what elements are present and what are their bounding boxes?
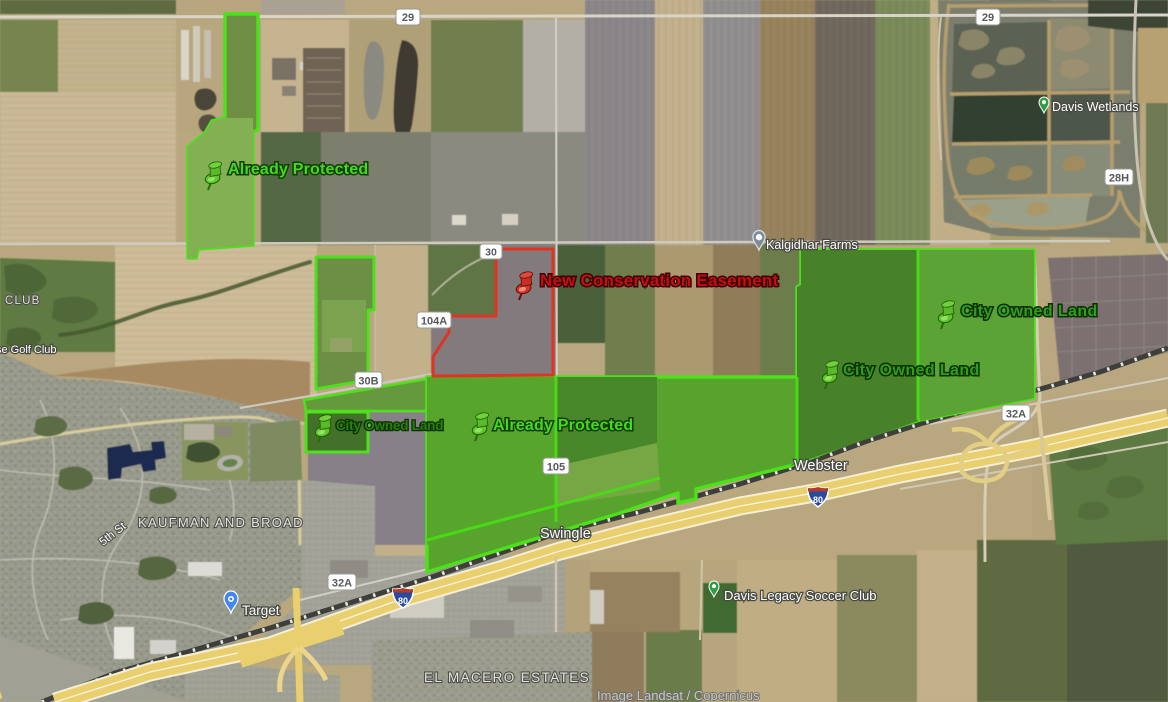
svg-text:City Owned Land: City Owned Land bbox=[843, 362, 980, 379]
svg-text:Swingle: Swingle bbox=[540, 526, 591, 542]
svg-text:City Owned Land: City Owned Land bbox=[961, 303, 1098, 320]
svg-text:105: 105 bbox=[547, 462, 565, 474]
svg-text:Webster: Webster bbox=[794, 458, 848, 474]
svg-text:Davis Wetlands: Davis Wetlands bbox=[1052, 100, 1139, 114]
svg-text:City Owned Land: City Owned Land bbox=[336, 418, 443, 433]
svg-text:28H: 28H bbox=[1109, 173, 1129, 185]
svg-text:104A: 104A bbox=[421, 316, 447, 328]
svg-text:29: 29 bbox=[402, 12, 414, 24]
svg-text:Kalgidhar Farms: Kalgidhar Farms bbox=[766, 238, 858, 252]
svg-text:30B: 30B bbox=[358, 376, 378, 388]
svg-text:32A: 32A bbox=[1006, 409, 1026, 421]
svg-text:30: 30 bbox=[485, 247, 497, 259]
svg-text:Already Protected: Already Protected bbox=[493, 417, 633, 434]
svg-text:Target: Target bbox=[242, 603, 280, 618]
svg-text:Already Protected: Already Protected bbox=[228, 161, 368, 178]
svg-text:CLUB: CLUB bbox=[5, 295, 40, 307]
svg-text:KAUFMAN AND BROAD: KAUFMAN AND BROAD bbox=[138, 515, 304, 530]
svg-text:New Conservation Easement: New Conservation Easement bbox=[540, 271, 778, 290]
svg-text:Image Landsat / Copernicus: Image Landsat / Copernicus bbox=[597, 688, 760, 702]
svg-text:EL MACERO ESTATES: EL MACERO ESTATES bbox=[424, 670, 590, 685]
svg-text:se Golf Club: se Golf Club bbox=[0, 344, 57, 356]
svg-text:29: 29 bbox=[982, 12, 994, 24]
svg-text:Davis Legacy Soccer Club: Davis Legacy Soccer Club bbox=[724, 588, 876, 603]
svg-text:32A: 32A bbox=[332, 578, 352, 590]
